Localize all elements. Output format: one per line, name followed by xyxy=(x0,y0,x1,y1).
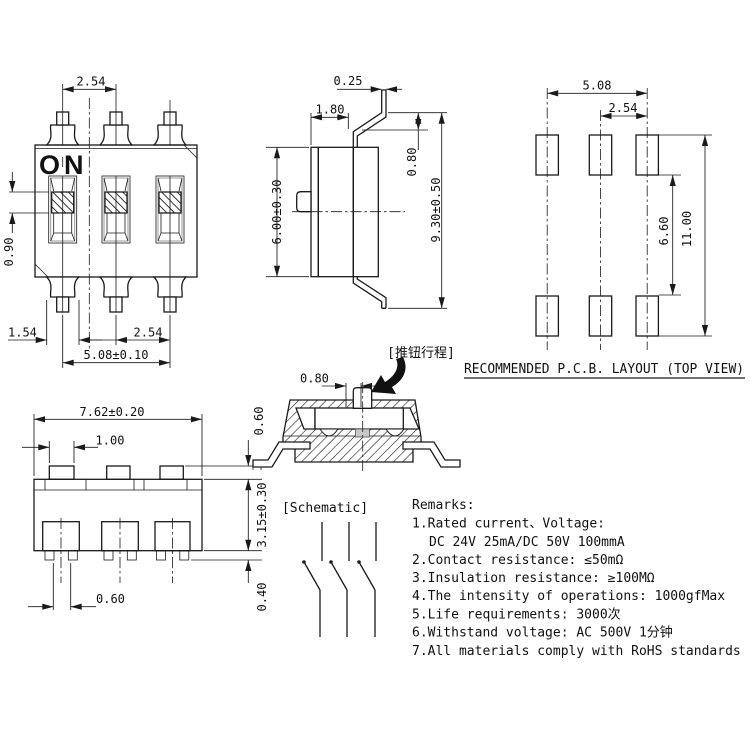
remarks-block: Remarks: 1.Rated current、Voltage: DC 24V… xyxy=(412,498,741,659)
remark-line: 5.Life requirements: 3000次 xyxy=(412,607,621,623)
dim-pitch-top: 2.54 xyxy=(77,75,106,89)
dip-switch-technical-drawing: ON xyxy=(0,0,750,750)
remark-line: 4.The intensity of operations: 1000gfMax xyxy=(412,589,725,604)
dim-pcb-pitch: 2.54 xyxy=(609,101,638,115)
bump xyxy=(49,466,74,479)
dim-top-width: 1.80 xyxy=(316,103,345,117)
dim-pin-thickness: 0.25 xyxy=(334,74,363,88)
dim-foot-width: 0.60 xyxy=(96,592,125,606)
front-view: ON xyxy=(2,75,197,369)
switch-symbol-2 xyxy=(329,522,349,637)
bump xyxy=(107,466,130,479)
remarks-title: Remarks: xyxy=(412,498,475,513)
switch-symbol-1 xyxy=(302,522,322,637)
remark-line: DC 24V 25mA/DC 50V 100mmA xyxy=(429,535,625,550)
drawing-canvas: ON xyxy=(0,0,750,750)
remark-line: 3.Insulation resistance: ≥100MΩ xyxy=(412,571,655,586)
pcb-layout-view: 5.08 2.54 6.60 11.00 RECOMMENDED P.C.B. … xyxy=(464,79,745,379)
travel-label: [推钮行程] xyxy=(387,346,455,361)
side-view: 0.25 1.80 0.80 6.00±0.30 9.30±0.50 xyxy=(266,74,447,308)
remark-line: 6.Withstand voltage: AC 500V 1分钟 xyxy=(412,625,673,641)
remark-line: 2.Contact resistance: ≤50mΩ xyxy=(412,553,623,568)
dim-overall-height: 9.30±0.50 xyxy=(429,177,443,242)
bottom-view: 7.62±0.20 1.00 0.60 0.60 3.15±0.30 0.40 xyxy=(22,405,269,611)
schematic-label: [Schematic] xyxy=(282,501,368,516)
switch-symbol-3 xyxy=(357,522,376,637)
top-lead xyxy=(353,90,386,147)
dim-body-height: 6.00±0.30 xyxy=(270,179,284,244)
section-view: 0.80 [推钮行程] xyxy=(253,346,460,474)
pcb-layout-title: RECOMMENDED P.C.B. LAYOUT (TOP VIEW) xyxy=(464,362,744,377)
dim-bump-width: 1.00 xyxy=(96,434,125,448)
side-knob xyxy=(297,192,311,212)
dim-bump-height: 0.60 xyxy=(252,407,266,436)
dim-pcb-span: 5.08 xyxy=(583,79,612,93)
dim-pin-offset: 0.80 xyxy=(405,148,419,177)
dim-pcb-overall: 11.00 xyxy=(680,211,694,247)
dim-span: 5.08±0.10 xyxy=(83,348,148,362)
travel-callout-arrow xyxy=(371,357,406,394)
dim-pitch-bottom: 2.54 xyxy=(134,326,163,340)
dim-pad-width: 1.54 xyxy=(8,326,37,340)
remark-line: 7.All materials comply with RoHS standar… xyxy=(412,644,741,659)
dim-body-thickness: 3.15±0.30 xyxy=(255,482,269,547)
dim-foot-height: 0.40 xyxy=(255,583,269,612)
dim-pcb-inner-gap: 6.60 xyxy=(657,217,671,246)
dim-body-width: 7.62±0.20 xyxy=(79,405,144,419)
remark-line: 1.Rated current、Voltage: xyxy=(412,517,605,532)
section-slider xyxy=(315,408,403,429)
on-marking: ON xyxy=(39,150,88,180)
dim-knob-height: 0.90 xyxy=(2,238,16,267)
bottom-lead xyxy=(353,277,386,309)
dim-travel: 0.80 xyxy=(300,372,329,386)
bump xyxy=(160,466,183,479)
schematic-view: [Schematic] xyxy=(282,501,376,637)
